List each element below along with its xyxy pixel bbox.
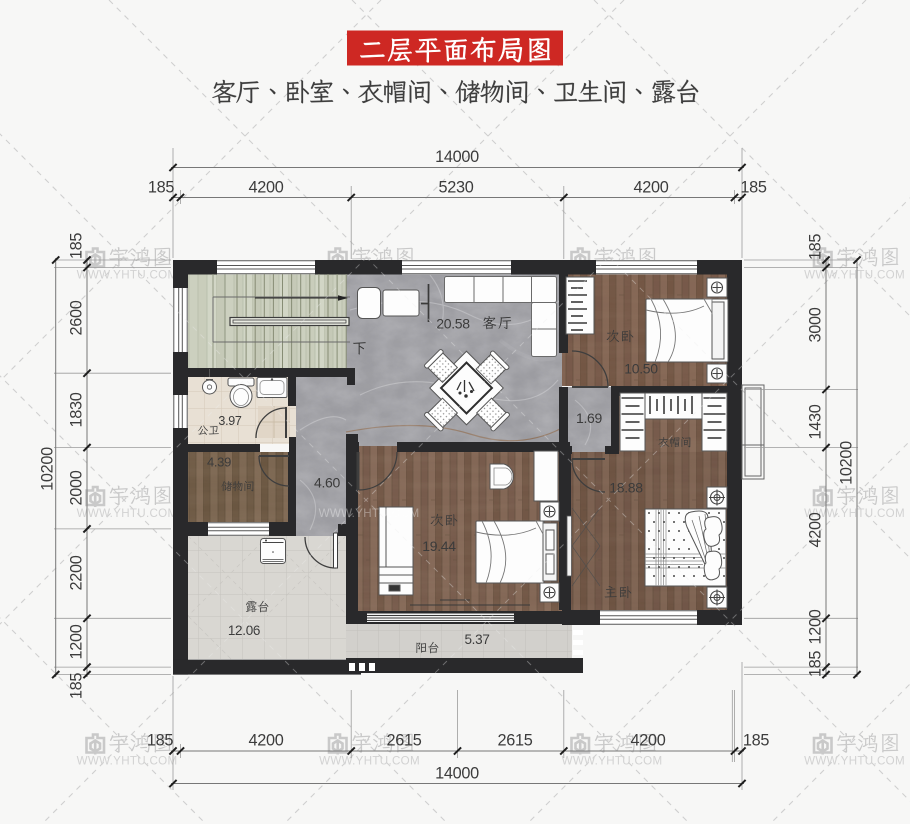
svg-text:10200: 10200 [838,441,856,485]
svg-text:3.97: 3.97 [218,414,241,428]
svg-text:1430: 1430 [807,404,825,439]
svg-text:3000: 3000 [807,307,825,342]
svg-text:10200: 10200 [39,447,57,491]
svg-text:185: 185 [807,234,825,261]
svg-text:WWW.YHTU.COM: WWW.YHTU.COM [77,507,178,520]
svg-text:185: 185 [807,651,825,678]
svg-text:1200: 1200 [68,624,86,659]
svg-text:WWW.YHTU.COM: WWW.YHTU.COM [319,507,420,520]
svg-text:4200: 4200 [807,512,825,547]
svg-text:185: 185 [68,233,86,260]
svg-text:1.69: 1.69 [576,410,603,426]
svg-text:4200: 4200 [248,179,283,197]
svg-text:5230: 5230 [438,179,473,197]
svg-text:4200: 4200 [630,732,665,750]
svg-text:4.60: 4.60 [314,474,341,490]
svg-text:185: 185 [68,673,86,700]
svg-text:14000: 14000 [435,148,479,166]
svg-text:14000: 14000 [435,765,479,783]
svg-text:4.39: 4.39 [207,455,231,470]
svg-text:1830: 1830 [68,392,86,427]
svg-text:19.44: 19.44 [422,538,456,554]
svg-text:WWW.YHTU.COM: WWW.YHTU.COM [804,269,905,282]
svg-text:2000: 2000 [68,470,86,505]
svg-text:2200: 2200 [68,555,86,590]
svg-text:1200: 1200 [807,609,825,644]
svg-text:4200: 4200 [248,732,283,750]
svg-text:10.50: 10.50 [624,360,658,376]
svg-text:185: 185 [740,179,767,197]
svg-text:WWW.YHTU.COM: WWW.YHTU.COM [804,755,905,768]
svg-text:185: 185 [743,732,770,750]
svg-text:185: 185 [148,179,175,197]
svg-text:185: 185 [147,732,174,750]
svg-text:4200: 4200 [633,179,668,197]
svg-text:2615: 2615 [497,732,532,750]
svg-text:WWW.YHTU.COM: WWW.YHTU.COM [77,269,178,282]
svg-text:WWW.YHTU.COM: WWW.YHTU.COM [319,755,420,768]
svg-text:2600: 2600 [68,300,86,335]
svg-text:2615: 2615 [386,732,421,750]
svg-text:WWW.YHTU.COM: WWW.YHTU.COM [77,755,178,768]
svg-text:20.58: 20.58 [436,315,470,331]
svg-text:WWW.YHTU.COM: WWW.YHTU.COM [562,755,663,768]
